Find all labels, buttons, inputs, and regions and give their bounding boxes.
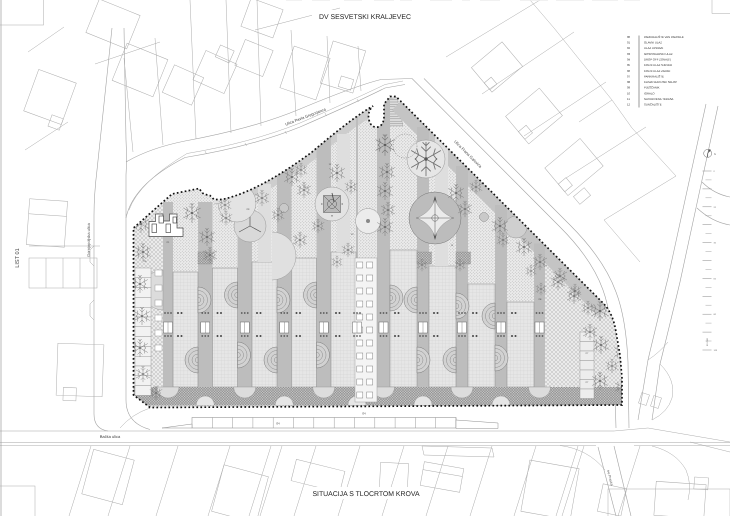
svg-text:SUNČALIŠTE: SUNČALIŠTE bbox=[644, 103, 662, 107]
svg-text:LIST 01: LIST 01 bbox=[15, 248, 21, 268]
svg-text:02: 02 bbox=[627, 46, 631, 50]
svg-text:DROP OFF ZONA(5'): DROP OFF ZONA(5') bbox=[644, 57, 671, 61]
svg-text:10: 10 bbox=[627, 91, 631, 95]
svg-text:07: 07 bbox=[627, 74, 631, 78]
svg-text:12: 12 bbox=[627, 103, 631, 107]
svg-text:NATKRIVENA TERASA: NATKRIVENA TERASA bbox=[644, 97, 674, 101]
svg-text:GOSPODARSKI ULAZ: GOSPODARSKI ULAZ bbox=[644, 52, 673, 56]
svg-text:06: 06 bbox=[627, 69, 631, 73]
svg-text:KLIMATIZACIJSKI SKLOP: KLIMATIZACIJSKI SKLOP bbox=[644, 80, 677, 84]
svg-text:Gornjopoljska ulica: Gornjopoljska ulica bbox=[86, 222, 91, 257]
svg-text:DV SESVETSKI KRALJEVEC: DV SESVETSKI KRALJEVEC bbox=[319, 14, 411, 21]
svg-text:08: 08 bbox=[627, 80, 631, 84]
svg-text:M 1:500: M 1:500 bbox=[706, 337, 709, 346]
svg-text:03: 03 bbox=[627, 52, 631, 56]
svg-text:KOLNI ULAZ SJEVER: KOLNI ULAZ SJEVER bbox=[644, 63, 672, 67]
svg-text:PARKIRALIŠTE: PARKIRALIŠTE bbox=[644, 74, 664, 78]
svg-text:KOLNI ULAZ ZAPAD: KOLNI ULAZ ZAPAD bbox=[644, 69, 670, 73]
svg-text:00: 00 bbox=[627, 35, 631, 39]
svg-text:PJEŠČANIK: PJEŠČANIK bbox=[644, 86, 660, 90]
svg-text:N: N bbox=[714, 153, 716, 156]
svg-text:01: 01 bbox=[627, 41, 631, 45]
svg-text:IGRALO: IGRALO bbox=[644, 91, 655, 95]
svg-text:09: 09 bbox=[627, 86, 631, 90]
svg-text:PARKIRALIŠTE VAN PARCELE: PARKIRALIŠTE VAN PARCELE bbox=[644, 35, 684, 39]
svg-text:Bačka ulica: Bačka ulica bbox=[100, 434, 121, 439]
svg-text:SITUACIJA S TLOCRTOM KROVA: SITUACIJA S TLOCRTOM KROVA bbox=[312, 491, 419, 498]
svg-text:11: 11 bbox=[627, 97, 630, 101]
svg-text:04: 04 bbox=[627, 57, 631, 61]
svg-text:04: 04 bbox=[276, 422, 280, 426]
svg-text:05: 05 bbox=[627, 63, 631, 67]
svg-text:ULAZ UPRAVE: ULAZ UPRAVE bbox=[644, 46, 663, 50]
svg-text:04: 04 bbox=[362, 412, 366, 416]
svg-text:GLAVNI ULAZ: GLAVNI ULAZ bbox=[644, 41, 662, 45]
